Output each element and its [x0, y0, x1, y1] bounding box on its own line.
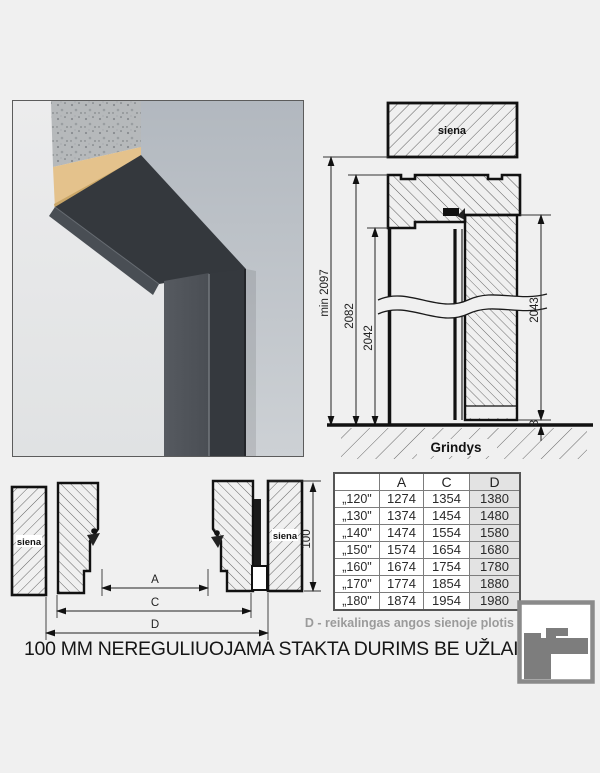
table-cell: 1874	[380, 593, 424, 611]
table-row: „140" 1474 1554 1580	[334, 525, 520, 542]
table-cell: 1274	[380, 491, 424, 508]
row-label: „160"	[334, 559, 380, 576]
frame-photo	[12, 100, 304, 457]
table-row: „120" 1274 1354 1380	[334, 491, 520, 508]
table-header-c: C	[424, 473, 470, 491]
table-cell: 1880	[470, 576, 521, 593]
jamb-right-face	[209, 269, 246, 456]
table-header-blank	[334, 473, 380, 491]
elev-wall-label: siena	[438, 125, 467, 137]
brand-logo	[517, 600, 595, 684]
plan-drawing: siena siena	[0, 473, 335, 648]
row-label: „170"	[334, 576, 380, 593]
dim-door: 2043	[529, 297, 541, 323]
row-label: „140"	[334, 525, 380, 542]
table-cell: 1754	[424, 559, 470, 576]
row-label: „130"	[334, 508, 380, 525]
table-cell: 1980	[470, 593, 521, 611]
table-header-row: A C D	[334, 473, 520, 491]
elev-door-slab	[465, 215, 517, 420]
elevation-drawing: siena Grindys	[305, 88, 600, 473]
dim-min-total: min 2097	[319, 269, 331, 316]
table-cell: 1380	[470, 491, 521, 508]
plan-right-wall-label: siena	[273, 531, 298, 542]
table-row: „160" 1674 1754 1780	[334, 559, 520, 576]
row-label: „150"	[334, 542, 380, 559]
spec-sheet: siena Grindys	[0, 0, 600, 773]
elev-seal-detail	[443, 208, 459, 216]
dim-c: C	[151, 597, 159, 609]
plan-door-edge	[254, 499, 261, 565]
dim-frame-depth: 100	[301, 529, 313, 548]
table-cell: 1354	[424, 491, 470, 508]
table-cell: 1680	[470, 542, 521, 559]
elev-door-bottom-rail	[467, 406, 516, 418]
dim-opening: 2042	[363, 325, 375, 351]
plan-strike-box	[252, 566, 267, 590]
table-header-d: D	[470, 473, 521, 491]
frame-photo-render	[13, 101, 303, 456]
jamb-left-face	[164, 273, 209, 456]
table-row: „170" 1774 1854 1880	[334, 576, 520, 593]
table-cell: 1554	[424, 525, 470, 542]
row-label: „180"	[334, 593, 380, 611]
page-title: 100 MM NEREGULIUOJAMA STAKTA DURIMS BE U…	[24, 638, 560, 661]
table-row: „130" 1374 1454 1480	[334, 508, 520, 525]
table-header-a: A	[380, 473, 424, 491]
size-table: A C D „120" 1274 1354 1380 „130" 1374 14…	[333, 472, 521, 611]
table-cell: 1454	[424, 508, 470, 525]
table-cell: 1374	[380, 508, 424, 525]
plan-right-seal-knob	[214, 530, 220, 536]
table-row: „150" 1574 1654 1680	[334, 542, 520, 559]
plan-left-seal-knob	[91, 528, 97, 534]
dim-frame-outer: 2082	[344, 303, 356, 329]
table-cell: 1474	[380, 525, 424, 542]
table-cell: 1674	[380, 559, 424, 576]
table-cell: 1774	[380, 576, 424, 593]
dim-a: A	[151, 574, 159, 586]
table-cell: 1580	[470, 525, 521, 542]
floor-label: Grindys	[430, 440, 481, 455]
table-cell: 1854	[424, 576, 470, 593]
dim-floor-gap: 8	[529, 420, 541, 426]
table-cell: 1480	[470, 508, 521, 525]
row-label: „120"	[334, 491, 380, 508]
table-row: „180" 1874 1954 1980	[334, 593, 520, 611]
table-cell: 1574	[380, 542, 424, 559]
plan-left-wall-label: siena	[17, 537, 42, 548]
dim-d: D	[151, 619, 159, 631]
wall-shadow	[246, 269, 256, 456]
table-cell: 1954	[424, 593, 470, 611]
table-cell: 1780	[470, 559, 521, 576]
table-cell: 1654	[424, 542, 470, 559]
d-note: D - reikalingas angos sienoje plotis	[305, 616, 514, 630]
